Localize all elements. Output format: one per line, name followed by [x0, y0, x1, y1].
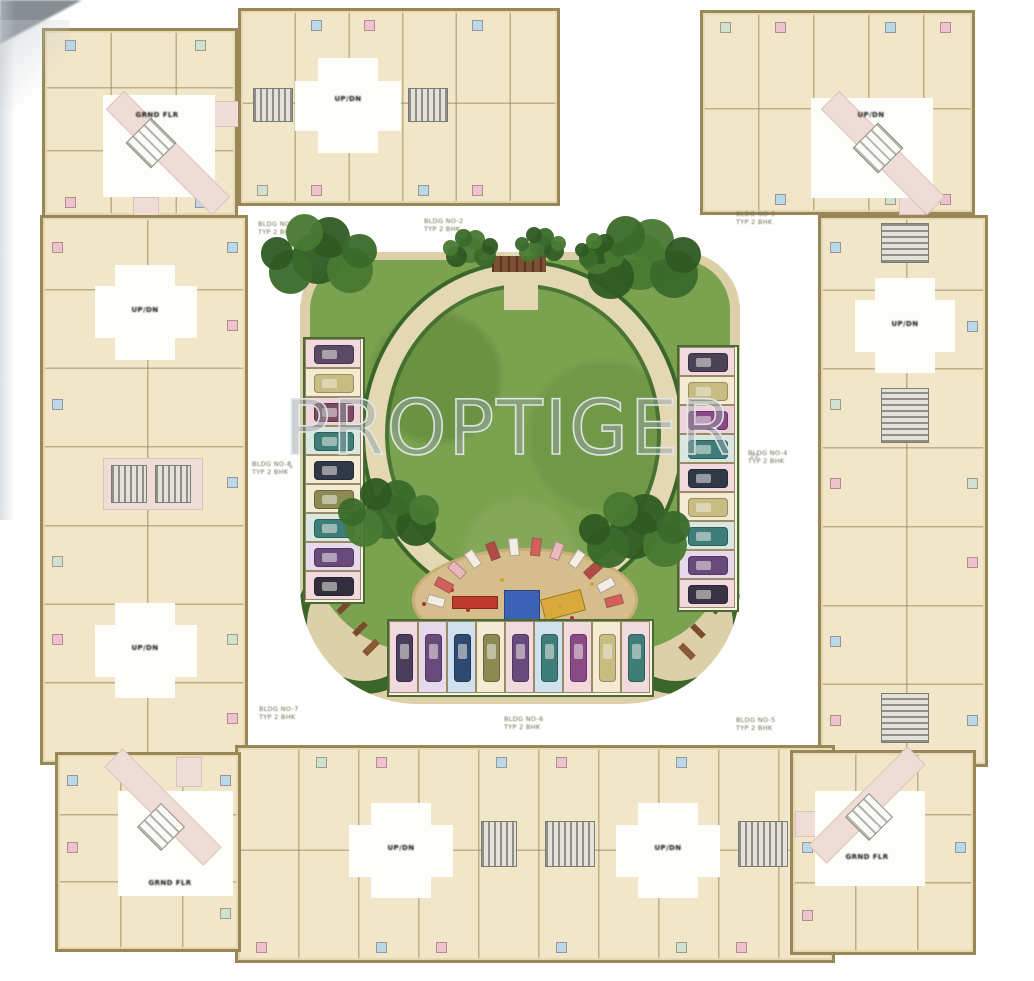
- parked-car: [688, 585, 728, 604]
- room-furniture-accent: [227, 320, 238, 331]
- parked-car: [541, 634, 557, 683]
- core-label: GRND FLR: [135, 111, 178, 119]
- parking-stall: [418, 621, 447, 693]
- site-plan: GRND FLRUP/DNUP/DNUP/DNUP/DNUP/DNUP/DNUP…: [0, 0, 1034, 981]
- parking-stall: [476, 621, 505, 693]
- car-roof: [696, 358, 711, 367]
- room-furniture-accent: [830, 399, 841, 410]
- car-roof: [603, 644, 613, 659]
- room-furniture-accent: [802, 910, 813, 921]
- room-furniture-accent: [496, 757, 507, 768]
- tree-foliage: [409, 495, 439, 525]
- room-furniture-accent: [676, 757, 687, 768]
- play-dot: [500, 578, 504, 582]
- stair-shaft: [881, 388, 929, 443]
- tree-foliage: [482, 238, 499, 255]
- car-roof: [322, 495, 337, 504]
- tree-foliage: [551, 236, 566, 251]
- tree-foliage: [611, 242, 626, 257]
- room-furniture-accent: [830, 715, 841, 726]
- parking-stall: [505, 621, 534, 693]
- room-furniture-accent: [257, 185, 268, 196]
- parked-car: [599, 634, 615, 683]
- play-dot: [558, 604, 562, 608]
- core-label: UP/DN: [857, 111, 884, 119]
- car-roof: [574, 644, 584, 659]
- parking-stall: [305, 542, 361, 571]
- tree-foliage: [665, 237, 701, 273]
- room-furniture-accent: [830, 636, 841, 647]
- parked-car: [314, 548, 354, 567]
- room-furniture-accent: [556, 942, 567, 953]
- parking-stall: [563, 621, 592, 693]
- lift-lobby: [295, 81, 401, 131]
- room-furniture-accent: [830, 478, 841, 489]
- tree-foliage: [443, 240, 458, 255]
- tree-foliage: [579, 514, 610, 545]
- stair-shaft: [881, 223, 929, 263]
- room-furniture-accent: [967, 557, 978, 568]
- tree-foliage: [261, 237, 293, 269]
- stair-shaft: [881, 693, 929, 743]
- room-furniture-accent: [227, 242, 238, 253]
- parking-stall: [534, 621, 563, 693]
- room-furniture-accent: [720, 22, 731, 33]
- car-roof: [545, 644, 555, 659]
- building-block-corner-tr: UP/DN: [700, 10, 975, 215]
- floor-plan-canvas: GRND FLRUP/DNUP/DNUP/DNUP/DNUP/DNUP/DNUP…: [0, 0, 1034, 981]
- stair-shaft: [738, 821, 788, 867]
- tree-foliage: [342, 234, 377, 269]
- car-roof: [696, 474, 711, 483]
- parked-car: [688, 556, 728, 575]
- room-furniture-accent: [676, 942, 687, 953]
- room-furniture-accent: [472, 185, 483, 196]
- room-furniture-accent: [311, 185, 322, 196]
- corridor: [176, 757, 202, 787]
- page-edge-strip: [0, 0, 15, 520]
- room-furniture-accent: [364, 20, 375, 31]
- car-roof: [322, 350, 337, 359]
- proptiger-watermark: PROPTIGER: [284, 383, 735, 472]
- room-furniture-accent: [885, 22, 896, 33]
- parking-row-bottom: [387, 619, 654, 697]
- play-equipment: [504, 590, 540, 622]
- tree-foliage: [338, 498, 366, 526]
- car-roof: [696, 503, 711, 512]
- tree-foliage: [657, 511, 690, 544]
- room-furniture-accent: [52, 556, 63, 567]
- car-roof: [322, 524, 337, 533]
- room-furniture-accent: [940, 22, 951, 33]
- parked-car: [628, 634, 644, 683]
- room-furniture-accent: [311, 20, 322, 31]
- room-furniture-accent: [830, 242, 841, 253]
- room-furniture-accent: [67, 775, 78, 786]
- room-furniture-accent: [376, 757, 387, 768]
- parking-stall: [679, 579, 735, 608]
- room-furniture-accent: [967, 478, 978, 489]
- car-roof: [696, 532, 711, 541]
- room-furniture-accent: [967, 715, 978, 726]
- parked-car: [454, 634, 470, 683]
- parked-car: [688, 498, 728, 517]
- car-roof: [696, 561, 711, 570]
- room-furniture-accent: [556, 757, 567, 768]
- car-roof: [516, 644, 526, 659]
- core-label: UP/DN: [891, 320, 918, 328]
- room-furniture-accent: [775, 194, 786, 205]
- car-roof: [696, 590, 711, 599]
- room-furniture-accent: [220, 775, 231, 786]
- parking-stall: [389, 621, 418, 693]
- car-roof: [429, 644, 439, 659]
- room-furniture-accent: [967, 321, 978, 332]
- core-label: UP/DN: [654, 844, 681, 852]
- room-furniture-accent: [418, 185, 429, 196]
- tree-foliage: [515, 237, 529, 251]
- building-caption: BLDG NO-5 TYP 2 BHK: [736, 717, 776, 732]
- play-dot: [466, 608, 470, 612]
- core-label: GRND FLR: [148, 879, 191, 887]
- building-block-wing-bottom: UP/DNUP/DN: [235, 745, 835, 963]
- building-caption: BLDG NO-7 TYP 2 BHK: [259, 706, 299, 721]
- stair-shaft: [155, 465, 191, 503]
- play-dot: [590, 582, 594, 586]
- room-furniture-accent: [220, 908, 231, 919]
- room-furniture-accent: [52, 399, 63, 410]
- parking-stall: [305, 571, 361, 600]
- play-equipment: [452, 596, 498, 609]
- core-label: UP/DN: [387, 844, 414, 852]
- planter-tile: [530, 537, 542, 556]
- building-block-corner-bl: GRND FLR: [55, 752, 241, 952]
- car-roof: [322, 553, 337, 562]
- stair-shaft: [253, 88, 293, 122]
- parking-stall: [679, 550, 735, 579]
- stair-shaft: [545, 821, 595, 867]
- car-roof: [322, 582, 337, 591]
- car-roof: [458, 644, 468, 659]
- stair-shaft: [111, 465, 147, 503]
- room-furniture-accent: [195, 40, 206, 51]
- parked-car: [688, 527, 728, 546]
- parking-stall: [305, 339, 361, 368]
- stair-shaft: [408, 88, 448, 122]
- tree-foliage: [575, 243, 589, 257]
- car-roof: [632, 644, 642, 659]
- room-furniture-accent: [436, 942, 447, 953]
- parking-stall: [679, 347, 735, 376]
- stair-shaft: [481, 821, 517, 867]
- parked-car: [425, 634, 441, 683]
- parking-stall: [447, 621, 476, 693]
- parked-car: [688, 469, 728, 488]
- parking-stall: [592, 621, 621, 693]
- core-label: GRND FLR: [845, 853, 888, 861]
- parked-car: [314, 577, 354, 596]
- building-block-wing-top: UP/DN: [238, 8, 560, 206]
- building-block-wing-left: UP/DNUP/DN: [40, 215, 248, 765]
- parked-car: [396, 634, 412, 683]
- room-furniture-accent: [67, 842, 78, 853]
- room-furniture-accent: [376, 942, 387, 953]
- building-block-wing-right: UP/DN: [818, 215, 988, 767]
- room-furniture-accent: [227, 477, 238, 488]
- room-furniture-accent: [316, 757, 327, 768]
- room-furniture-accent: [472, 20, 483, 31]
- tree-foliage: [360, 478, 392, 510]
- core-label: UP/DN: [131, 644, 158, 652]
- parked-car: [512, 634, 528, 683]
- building-caption: BLDG NO-3 TYP 2 BHK: [736, 211, 776, 226]
- core-label: UP/DN: [131, 306, 158, 314]
- room-furniture-accent: [52, 634, 63, 645]
- planter-tile: [508, 537, 520, 556]
- parked-car: [688, 353, 728, 372]
- parked-car: [483, 634, 499, 683]
- room-furniture-accent: [256, 942, 267, 953]
- room-furniture-accent: [65, 197, 76, 208]
- building-block-corner-br: GRND FLR: [790, 750, 976, 955]
- room-furniture-accent: [227, 634, 238, 645]
- room-furniture-accent: [736, 942, 747, 953]
- room-furniture-accent: [52, 242, 63, 253]
- entry-feature: [492, 256, 546, 272]
- building-caption: BLDG NO-6 TYP 2 BHK: [504, 716, 544, 731]
- building-block-corner-tl: GRND FLR: [42, 28, 238, 218]
- micro-mark: 22: [750, 452, 759, 460]
- core-label: UP/DN: [334, 95, 361, 103]
- car-roof: [487, 644, 497, 659]
- room-furniture-accent: [775, 22, 786, 33]
- parking-stall: [679, 492, 735, 521]
- room-furniture-accent: [955, 842, 966, 853]
- parked-car: [570, 634, 586, 683]
- parked-car: [314, 345, 354, 364]
- room-furniture-accent: [227, 713, 238, 724]
- car-roof: [400, 644, 410, 659]
- parking-stall: [621, 621, 650, 693]
